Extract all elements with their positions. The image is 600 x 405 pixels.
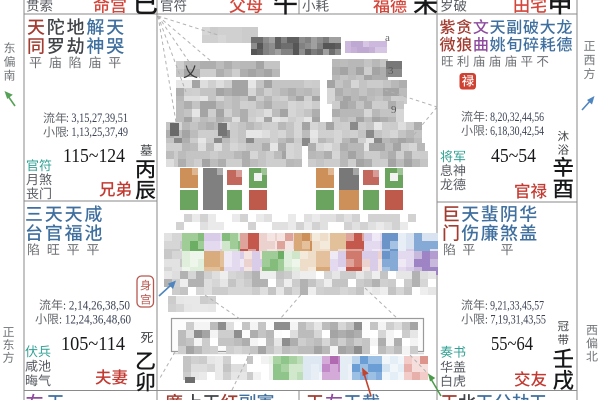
svg-text:45~54: 45~54 xyxy=(491,145,536,167)
svg-text:: 7,19,31,43,55: : 7,19,31,43,55 xyxy=(485,313,546,327)
svg-text:: 8,20,32,44,56: : 8,20,32,44,56 xyxy=(485,110,544,124)
svg-text:: 3,15,27,39,51: : 3,15,27,39,51 xyxy=(66,111,128,125)
svg-text:: 6,18,30,42,54: : 6,18,30,42,54 xyxy=(485,124,545,138)
svg-text:a: a xyxy=(385,32,390,44)
svg-text:: 2,14,26,38,50: : 2,14,26,38,50 xyxy=(63,299,130,313)
svg-text:115~124: 115~124 xyxy=(63,145,125,167)
svg-text:55~64: 55~64 xyxy=(491,333,533,355)
svg-text:: 9,21,33,45,57: : 9,21,33,45,57 xyxy=(485,299,544,313)
svg-text:3: 3 xyxy=(388,65,394,77)
svg-text:: 1,13,25,37,49: : 1,13,25,37,49 xyxy=(66,125,128,139)
svg-text:105~114: 105~114 xyxy=(61,333,125,355)
svg-text:9: 9 xyxy=(391,104,397,116)
svg-text:: 12,24,36,48,60: : 12,24,36,48,60 xyxy=(59,313,131,327)
